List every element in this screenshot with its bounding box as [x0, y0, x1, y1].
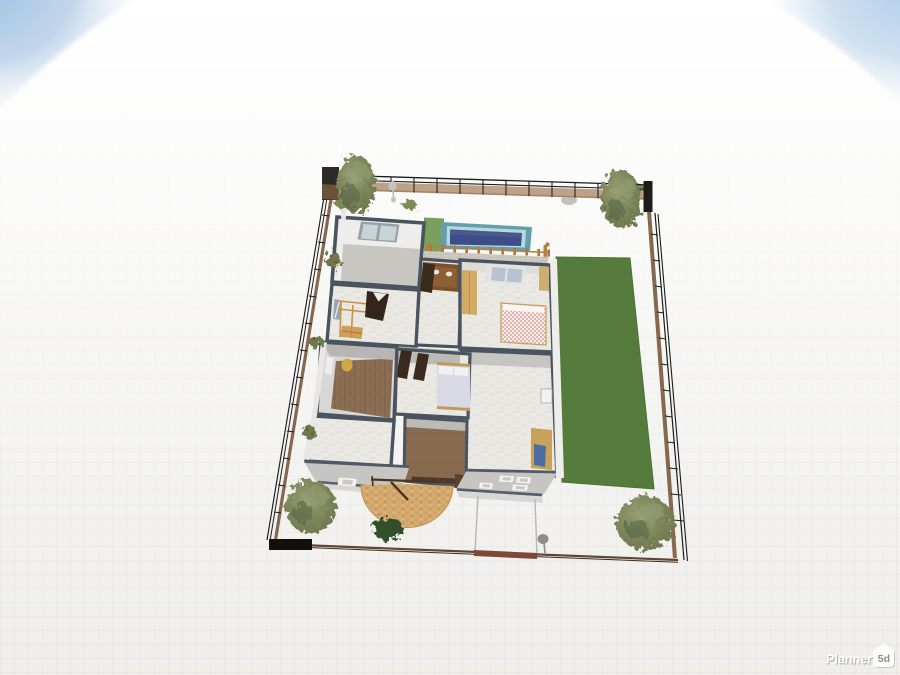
- svg-text:Planner: Planner: [826, 653, 872, 667]
- svg-text:5d: 5d: [878, 653, 890, 665]
